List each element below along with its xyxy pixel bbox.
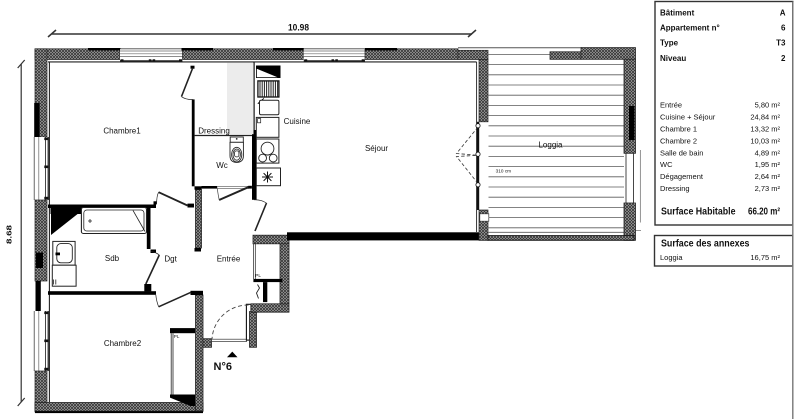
svg-text:2,73 m²: 2,73 m²	[755, 184, 781, 193]
svg-text:PL: PL	[174, 334, 180, 339]
svg-text:6: 6	[781, 24, 786, 33]
svg-text:10.98: 10.98	[288, 22, 309, 32]
svg-text:Entrée: Entrée	[217, 255, 241, 264]
svg-text:N°6: N°6	[214, 361, 232, 373]
svg-text:A: A	[780, 9, 786, 18]
svg-text:66.20 m²: 66.20 m²	[748, 206, 781, 217]
svg-text:13,32 m²: 13,32 m²	[750, 125, 780, 134]
svg-text:Dégagement: Dégagement	[660, 172, 704, 181]
svg-text:Chambre 2: Chambre 2	[660, 136, 697, 145]
svg-text:Dressing: Dressing	[660, 184, 690, 193]
svg-text:Cuisine + Séjour: Cuisine + Séjour	[660, 113, 716, 122]
svg-text:2,64 m²: 2,64 m²	[755, 172, 781, 181]
svg-text:Niveau: Niveau	[660, 54, 686, 63]
svg-text:Loggia: Loggia	[660, 253, 683, 262]
svg-text:2: 2	[781, 54, 786, 63]
svg-text:Wc: Wc	[216, 161, 228, 170]
svg-text:10,03 m²: 10,03 m²	[750, 136, 780, 145]
svg-text:Séjour: Séjour	[365, 144, 388, 153]
svg-text:Salle de bain: Salle de bain	[660, 148, 703, 157]
svg-text:8.68: 8.68	[5, 225, 14, 244]
svg-text:PL: PL	[255, 273, 261, 278]
svg-text:16,75 m²: 16,75 m²	[750, 253, 780, 262]
svg-text:5,80 m²: 5,80 m²	[755, 101, 781, 110]
svg-text:Chambre1: Chambre1	[103, 127, 141, 136]
svg-text:Surface Habitable: Surface Habitable	[661, 206, 736, 217]
svg-text:1,95 m²: 1,95 m²	[755, 160, 781, 169]
svg-text:Dgt: Dgt	[164, 255, 177, 264]
svg-text:Surface des annexes: Surface des annexes	[661, 239, 750, 250]
svg-text:Chambre2: Chambre2	[104, 339, 142, 348]
svg-text:Appartement n°: Appartement n°	[660, 24, 720, 33]
svg-text:Loggia: Loggia	[538, 141, 563, 150]
svg-text:Sdb: Sdb	[105, 254, 120, 263]
svg-text:Cuisine: Cuisine	[284, 117, 311, 126]
svg-text:Dressing: Dressing	[198, 127, 230, 136]
svg-text:310 cm: 310 cm	[496, 168, 512, 173]
svg-text:Bâtiment: Bâtiment	[660, 9, 695, 18]
svg-text:Entrée: Entrée	[660, 101, 682, 110]
svg-text:Chambre 1: Chambre 1	[660, 125, 697, 134]
svg-text:T3: T3	[776, 39, 786, 48]
svg-text:WC: WC	[660, 160, 673, 169]
svg-text:Type: Type	[660, 39, 679, 48]
svg-text:4,89 m²: 4,89 m²	[755, 148, 781, 157]
svg-text:24,84 m²: 24,84 m²	[750, 113, 780, 122]
